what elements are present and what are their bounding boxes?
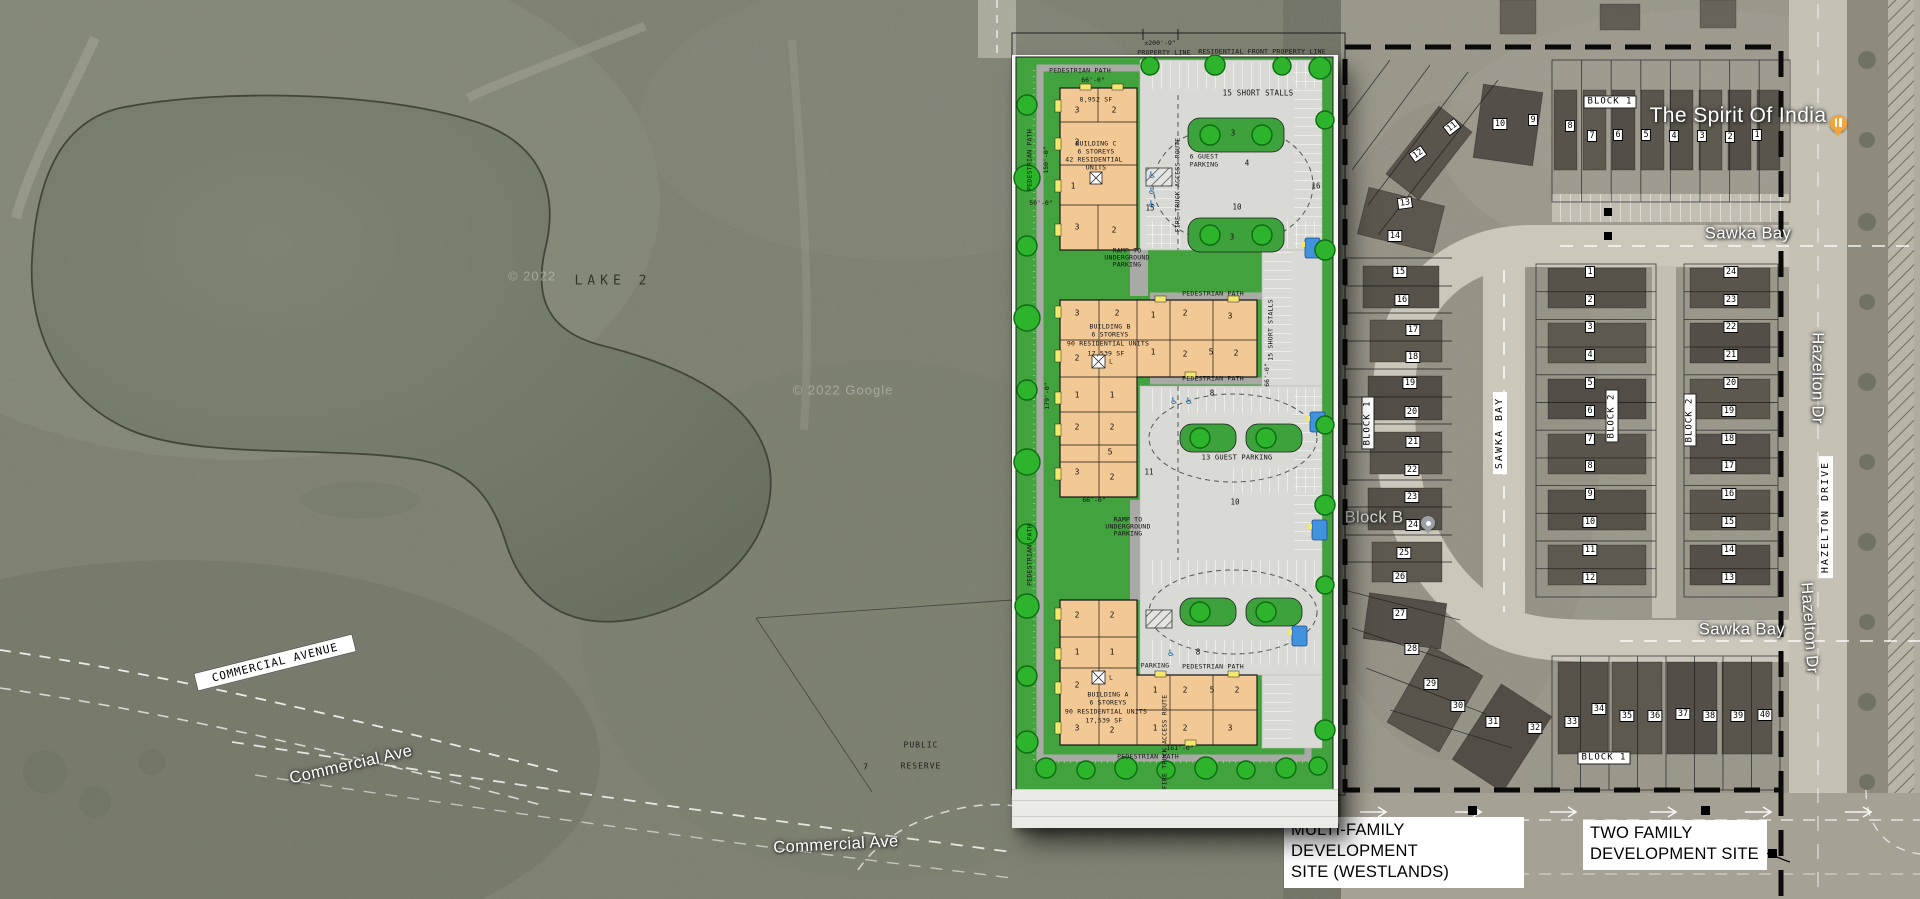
unit-count-number: 5 [1210,686,1215,695]
plan-annotation: 15 SHORT STALLS [1268,299,1275,361]
subdivision-layer [0,0,1920,899]
lot-number: 35 [1619,710,1634,722]
unit-count-number: 2 [1235,686,1240,695]
unit-count-number: 2 [1110,423,1115,432]
lot-number: 19 [1721,405,1736,417]
lot-number: 21 [1723,349,1738,361]
dimension-label: 66'-0" [1263,363,1271,386]
lot-number: 4 [1669,130,1679,142]
plan-annotation: FIRE TRUCK ACCESS ROUTE [1175,138,1182,233]
plan-annotation: PEDESTRIAN PATH [1027,129,1034,191]
svg-text:♿: ♿ [1185,397,1193,407]
plan-annotation: 6 STOREYS [1091,332,1128,339]
lot-number: 2 [1585,294,1595,306]
unit-count-number: 3 [1075,309,1080,318]
lot-number: 1 [1752,129,1762,141]
street-name-plan-label: HAZELTON DRIVE [1819,456,1833,578]
svg-text:♿: ♿ [1167,649,1175,659]
unit-count-number: 3 [1228,312,1233,321]
lot-number: 19 [1402,377,1417,389]
lot-number: 8 [1585,460,1595,472]
lot-number: 11 [1582,544,1597,556]
google-street-label: Hazelton Dr [1808,332,1827,424]
parking-stall-count: 11 [1144,468,1153,477]
unit-count-number: 3 [1075,468,1080,477]
fork-icon [1835,118,1838,127]
lot-number: 27 [1392,608,1407,620]
lot-number: 5 [1585,377,1595,389]
unit-count-number: 2 [1112,106,1117,115]
aerial-site-plan-map: Commercial AveCommercial AveSawka BaySaw… [0,0,1920,899]
lot-number: 32 [1527,722,1542,734]
plan-annotation: 6 STOREYS [1077,149,1114,156]
lot-7-label: 7 [863,763,869,772]
legend-two-line2: DEVELOPMENT SITE [1590,844,1760,865]
plan-annotation: L [1109,675,1113,682]
dimension-label: 66'-0" [1082,496,1105,504]
svg-text:♿: ♿ [1170,397,1178,407]
plan-annotation: PEDESTRIAN PATH [1182,376,1244,383]
google-street-label: Sawka Bay [1699,621,1785,640]
plan-annotation: BUILDING A [1087,692,1128,699]
lot-number: 13 [1397,196,1414,210]
lot-number: 6 [1613,129,1623,141]
unit-count-number: 1 [1075,391,1080,400]
dimension-label: ±200'-9" [1144,39,1175,47]
lot-number: 20 [1723,377,1738,389]
plan-annotation: L [1109,359,1113,366]
street-name-plan-label: SAWKA BAY [1493,392,1507,474]
unit-count-number: 1 [1151,311,1156,320]
parking-stall-count: 8 [1210,389,1215,398]
dimension-label: 50'-0" [1029,199,1052,207]
place-pin-dot [1426,521,1431,526]
lot-number: 13 [1721,572,1736,584]
unit-count-number: 1 [1153,724,1158,733]
lot-number: 22 [1404,464,1419,476]
legend-multi-line2: SITE (WESTLANDS) [1291,862,1517,883]
unit-count-number: 2 [1112,226,1117,235]
lot-number: 6 [1585,405,1595,417]
unit-count-number: 1 [1153,686,1158,695]
lot-number: 39 [1730,710,1745,722]
plan-annotation: PARKING [1141,663,1170,670]
lot-number: 37 [1675,708,1690,720]
block-label: BLOCK 2 [1684,394,1697,447]
lot-number: 34 [1591,703,1606,715]
pin-pointer [1424,528,1432,534]
parking-stall-count: 16 [1311,182,1320,191]
unit-count-number: 3 [1228,724,1233,733]
plan-annotation: PEDESTRIAN PATH [1182,664,1244,671]
unit-count-number: 5 [1108,448,1113,457]
unit-count-number: 2 [1075,138,1080,147]
unit-count-number: 1 [1071,182,1076,191]
plan-annotation: PROPERTY LINE [1137,50,1190,57]
plan-annotation: PARKING [1113,262,1142,269]
plan-annotation: 6 STOREYS [1089,700,1126,707]
lot-number: 3 [1697,130,1707,142]
pin-pointer [1834,130,1842,137]
legend-two-family: TWO FAMILY DEVELOPMENT SITE [1583,820,1767,870]
lot-number: 16 [1721,488,1736,500]
unit-count-number: 3 [1075,106,1080,115]
lot-number: 18 [1405,351,1420,363]
block-b-place-label: Block B [1345,509,1404,528]
parking-stall-count: 15 [1145,204,1154,213]
map-watermark: © 2022 [508,269,556,284]
lot-number: 30 [1450,700,1465,712]
parking-stall-count: 3 [1231,129,1236,138]
lot-number: 26 [1392,571,1407,583]
knife-icon [1839,118,1842,127]
plan-annotation: 42 RESIDENTIAL [1065,157,1123,164]
block-label: BLOCK 1 [1578,752,1631,765]
unit-count-number: 3 [1075,724,1080,733]
lot-number: 21 [1405,436,1420,448]
plan-annotation: PEDESTRIAN PATH [1027,524,1034,586]
lot-number: 24 [1723,266,1738,278]
lot-number: 38 [1702,710,1717,722]
public-reserve-label-line1: PUBLIC [904,741,939,750]
plan-road-strip [1012,789,1338,828]
plan-annotation: BUILDING B [1089,324,1130,331]
public-reserve-label-line2: RESERVE [901,762,942,771]
lot-number: 24 [1405,519,1420,531]
parking-stall-count: 3 [1230,233,1235,242]
dimension-label: 179'-0" [1043,382,1051,409]
unit-count-number: 2 [1110,611,1115,620]
lot-number: 16 [1394,294,1409,306]
unit-count-number: 1 [1151,348,1156,357]
plan-annotation: 90 RESIDENTIAL UNITS [1065,709,1147,716]
unit-count-number: 2 [1183,309,1188,318]
lot-number: 15 [1721,516,1736,528]
dimension-label: 161'-0" [1166,744,1193,752]
plan-annotation: 6 GUEST [1190,154,1219,161]
lot-number: 15 [1392,266,1407,278]
lot-number: 10 [1492,118,1507,130]
plan-annotation: 17,539 SF [1085,718,1122,725]
unit-count-number: 2 [1183,724,1188,733]
parking-stall-count: 4 [1245,159,1250,168]
unit-count-number: 2 [1075,354,1080,363]
plan-annotation: RESIDENTIAL FRONT PROPERTY LINE [1198,49,1326,56]
map-watermark: © 2022 Google [793,383,894,398]
unit-count-number: 2 [1115,309,1120,318]
plan-annotation: 8,952 SF [1080,97,1113,104]
plan-annotation: 90 RESIDENTIAL UNITS [1067,341,1149,348]
unit-count-number: 2 [1234,349,1239,358]
lot-number: 12 [1582,572,1597,584]
block-label: BLOCK 2 [1606,390,1619,443]
lot-number: 29 [1423,678,1438,690]
lot-number: 14 [1387,230,1402,242]
lot-number: 7 [1585,433,1595,445]
plan-annotation: PARKING [1114,531,1143,538]
unit-count-number: 1 [1075,648,1080,657]
plan-annotation: 15 SHORT STALLS [1223,90,1294,97]
lot-number: 20 [1404,406,1419,418]
lot-number: 3 [1585,321,1595,333]
unit-count-number: 2 [1183,350,1188,359]
lot-number: 33 [1564,716,1579,728]
lot-number: 2 [1725,131,1735,143]
lot-number: 5 [1641,129,1651,141]
lot-number: 9 [1528,114,1538,126]
google-street-label: The Spirit Of India [1650,104,1827,128]
lot-number: 17 [1721,460,1736,472]
unit-count-number: 5 [1209,348,1214,357]
plan-annotation: UNITS [1086,165,1107,172]
lot-number: 31 [1485,716,1500,728]
lot-number: 23 [1723,294,1738,306]
plan-annotation: PEDESTRIAN PATH [1117,754,1179,761]
lot-number: 25 [1396,547,1411,559]
lot-number: 7 [1587,130,1597,142]
legend-two-line1: TWO FAMILY [1590,823,1760,844]
svg-text:♿: ♿ [1148,171,1156,181]
plan-annotation: BUILDING C [1075,141,1116,148]
lot-number: 23 [1404,491,1419,503]
block-label: BLOCK 1 [1362,397,1375,450]
unit-count-number: 2 [1110,726,1115,735]
dimension-label: 66'-0" [1081,76,1104,84]
lot-number: 36 [1647,710,1662,722]
dimension-label: 150'-0" [1042,146,1050,173]
plan-annotation: PARKING [1190,162,1219,169]
lake-label: LAKE 2 [575,274,652,289]
unit-count-number: 1 [1110,648,1115,657]
lot-number: 17 [1405,324,1420,336]
unit-count-number: 2 [1075,681,1080,690]
plan-annotation: 17,539 SF [1087,351,1124,358]
lot-number: 8 [1565,120,1575,132]
lot-number: 9 [1585,488,1595,500]
lot-number: 10 [1582,516,1597,528]
unit-count-number: 2 [1183,686,1188,695]
plan-annotation: 13 GUEST PARKING [1202,455,1273,462]
lot-number: 18 [1721,433,1736,445]
lot-number: 4 [1585,349,1595,361]
lot-number: 22 [1723,321,1738,333]
unit-count-number: 2 [1075,423,1080,432]
lot-number: 40 [1757,709,1772,721]
lot-number: 14 [1721,544,1736,556]
unit-count-number: 2 [1110,473,1115,482]
plan-annotation: PEDESTRIAN PATH [1049,68,1111,75]
parking-stall-count: 10 [1230,498,1239,507]
unit-count-number: 3 [1075,223,1080,232]
lot-number: 1 [1585,266,1595,278]
parking-stall-count: 10 [1232,203,1241,212]
block-label: BLOCK 1 [1584,96,1637,109]
lot-number: 28 [1404,643,1419,655]
unit-count-number: 1 [1110,391,1115,400]
parking-stall-count: 8 [1196,648,1201,657]
unit-count-number: 2 [1075,611,1080,620]
plan-annotation: PEDESTRIAN PATH [1182,291,1244,298]
google-street-label: Sawka Bay [1705,225,1791,244]
plan-annotation: FIRE TRUCK ACCESS ROUTE [1162,695,1169,790]
svg-text:♿: ♿ [1148,187,1156,197]
